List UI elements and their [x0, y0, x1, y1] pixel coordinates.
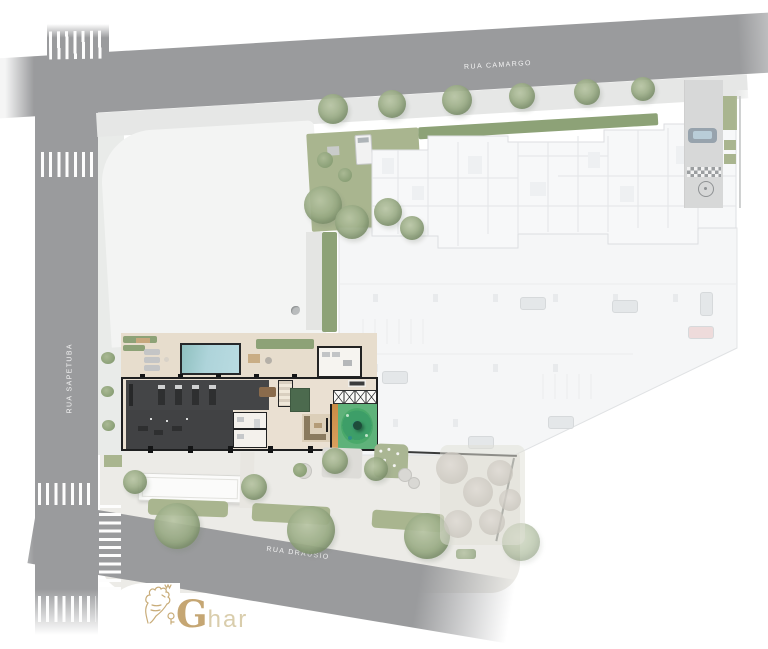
gym-dot: [166, 420, 168, 422]
tree-icon: [463, 477, 493, 507]
tree-icon: [335, 205, 369, 239]
crosswalk-icon: [38, 596, 96, 622]
column: [308, 446, 313, 453]
tree-icon: [499, 489, 521, 511]
umbrella-icon: [265, 357, 272, 364]
playground: [338, 404, 377, 449]
bush-icon: [317, 152, 333, 168]
column: [228, 446, 233, 453]
gym-equipment-icon: [138, 426, 148, 431]
lawn: [724, 154, 736, 164]
car-icon: [688, 326, 714, 339]
crosswalk-icon: [99, 505, 121, 591]
gym-equipment-icon: [209, 385, 216, 405]
crosswalk-icon: [41, 152, 97, 177]
logo-initial: G: [176, 590, 208, 638]
path: [306, 232, 322, 330]
tree-icon: [241, 474, 267, 500]
car-icon: [688, 128, 717, 143]
bush-icon: [293, 463, 307, 477]
gym-equipment-icon: [154, 430, 163, 435]
gym-equipment-icon: [158, 385, 165, 405]
pool: [180, 343, 241, 375]
tree-icon: [318, 94, 348, 124]
crosswalk-icon: [49, 31, 106, 60]
lion-key-logo-icon: [140, 583, 180, 627]
tree-icon: [436, 452, 468, 484]
watermark-logo: G har: [140, 583, 280, 637]
bush-icon: [338, 168, 352, 182]
tree-icon: [509, 83, 535, 109]
tree-icon: [287, 506, 335, 554]
boundary-wall: [739, 96, 741, 208]
car-icon: [612, 300, 638, 313]
lounger-icon: [144, 349, 160, 355]
gym-equipment-icon: [175, 385, 182, 405]
car-windshield: [693, 131, 712, 139]
crosswalk-icon: [38, 483, 95, 505]
lawn: [723, 96, 737, 130]
gym-dot: [150, 418, 152, 420]
tree-icon: [487, 460, 513, 486]
lounger-icon: [144, 357, 160, 363]
tree-icon: [123, 470, 147, 494]
tv-icon: [326, 418, 328, 432]
meeting-table: [348, 380, 366, 387]
car-icon: [548, 416, 574, 429]
storage-x-icon: [333, 390, 377, 404]
bush-icon: [456, 549, 476, 559]
gym-equipment-icon: [192, 385, 199, 405]
round-table-icon: [408, 477, 420, 489]
amenity-floorplan: [120, 330, 379, 454]
garden-bed: [104, 455, 122, 467]
tree-icon: [154, 503, 200, 549]
bench: [136, 338, 150, 343]
bush-icon: [102, 420, 115, 431]
tree-icon: [374, 198, 402, 226]
column: [188, 446, 193, 453]
hedge: [256, 339, 314, 349]
tree-icon: [378, 90, 406, 118]
site-plan-scene: RUA CAMARGO RUA SAPETUBA RUA DRAÚSIO: [0, 0, 768, 649]
tree-icon: [574, 79, 600, 105]
column: [148, 446, 153, 453]
coffee-table: [314, 423, 322, 428]
tree-icon: [400, 216, 424, 240]
deck-room: [317, 346, 362, 378]
lounge-rug: [290, 388, 310, 412]
outdoor-table: [248, 354, 260, 363]
sofa-icon: [304, 434, 326, 440]
planter: [123, 345, 145, 351]
tree-icon: [444, 510, 472, 538]
tree-icon: [631, 77, 655, 101]
logo-text: har: [208, 606, 249, 634]
dining-table: [259, 387, 276, 397]
turnaround-icon: [698, 181, 714, 197]
street-label-sapetuba: RUA SAPETUBA: [67, 354, 74, 414]
restrooms: [233, 412, 267, 448]
bush-icon: [101, 386, 114, 397]
lounger-icon: [144, 365, 160, 371]
bush-icon: [101, 352, 115, 364]
car-icon: [520, 297, 546, 310]
car-icon: [382, 371, 408, 384]
side-table: [164, 357, 169, 362]
gym-equipment-icon: [129, 384, 133, 406]
checker-strip-icon: [687, 167, 721, 177]
tree-icon: [364, 457, 388, 481]
car-icon: [700, 292, 713, 316]
lawn: [724, 140, 736, 150]
tree-icon: [479, 509, 505, 535]
gym-equipment-icon: [172, 426, 182, 431]
playground-tree-icon: [353, 421, 362, 430]
tree-icon: [322, 448, 348, 474]
tree-icon: [442, 85, 472, 115]
column: [268, 446, 273, 453]
gym-dot: [186, 418, 188, 420]
